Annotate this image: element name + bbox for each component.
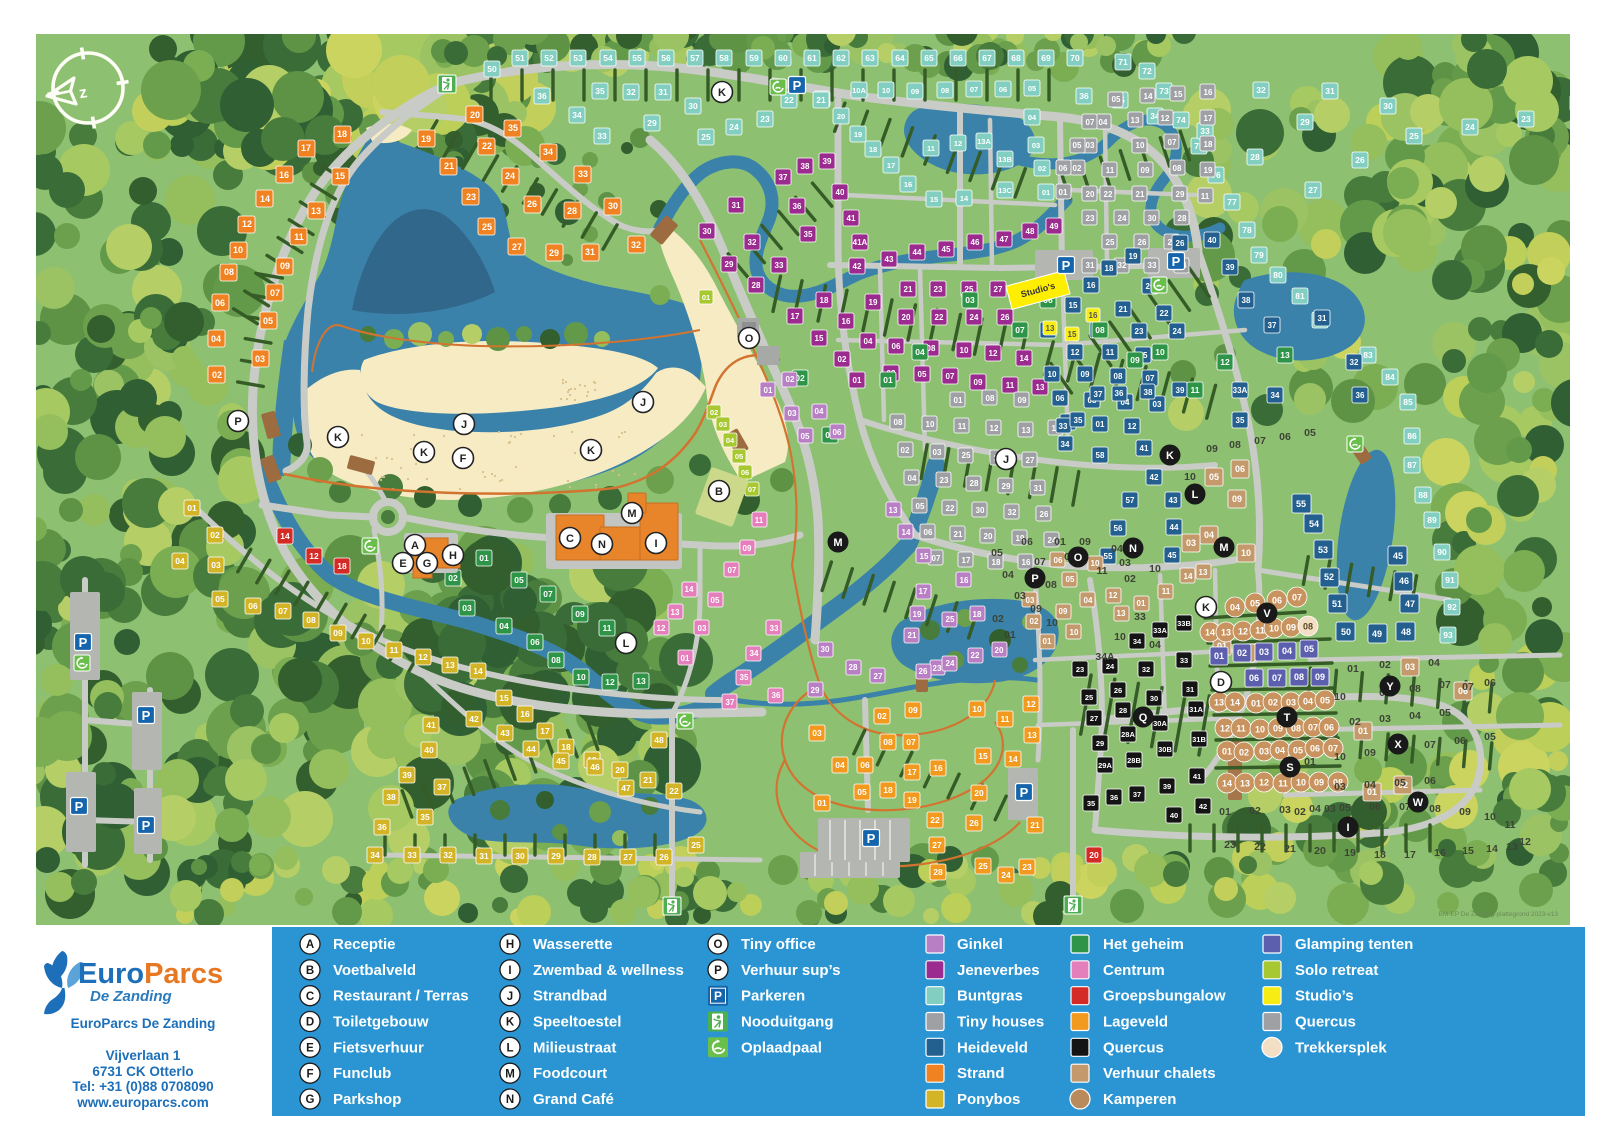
svg-text:10: 10: [1241, 548, 1251, 558]
svg-text:10: 10: [882, 86, 890, 95]
svg-text:06: 06: [741, 468, 749, 477]
svg-text:26: 26: [1040, 510, 1049, 519]
svg-text:19: 19: [1344, 847, 1356, 859]
svg-text:02: 02: [1124, 573, 1136, 585]
svg-text:12: 12: [954, 139, 962, 148]
svg-text:03: 03: [933, 448, 942, 457]
svg-text:38: 38: [801, 162, 810, 171]
svg-text:03: 03: [1259, 746, 1269, 756]
svg-text:16: 16: [1089, 311, 1098, 320]
svg-text:31: 31: [1325, 86, 1335, 96]
svg-text:08: 08: [894, 418, 903, 427]
svg-text:17: 17: [540, 726, 550, 736]
svg-text:26: 26: [969, 818, 979, 828]
svg-text:18: 18: [337, 129, 347, 139]
svg-text:13: 13: [445, 660, 455, 670]
svg-text:02: 02: [992, 613, 1004, 625]
svg-text:17: 17: [919, 587, 928, 596]
svg-text:29: 29: [1002, 482, 1011, 491]
svg-text:40: 40: [836, 188, 845, 197]
svg-text:10: 10: [1048, 370, 1057, 379]
svg-text:17: 17: [907, 767, 917, 777]
svg-text:29: 29: [647, 118, 657, 128]
svg-text:39: 39: [402, 770, 412, 780]
svg-text:M: M: [627, 508, 636, 520]
svg-text:N: N: [506, 1094, 514, 1106]
svg-text:20: 20: [1086, 190, 1095, 199]
svg-text:B: B: [715, 486, 723, 498]
svg-text:88: 88: [1418, 490, 1428, 500]
svg-text:27: 27: [512, 242, 522, 252]
svg-text:10: 10: [1114, 631, 1126, 643]
svg-text:13: 13: [1131, 116, 1140, 125]
svg-text:S: S: [1286, 762, 1293, 774]
svg-text:11: 11: [603, 623, 612, 633]
svg-text:41: 41: [847, 214, 856, 223]
svg-text:01: 01: [1043, 637, 1052, 646]
svg-text:45: 45: [942, 245, 951, 254]
svg-text:31: 31: [585, 247, 595, 257]
svg-text:Studio’s: Studio’s: [1295, 988, 1354, 1005]
svg-text:35: 35: [804, 230, 813, 239]
svg-text:42: 42: [1199, 802, 1207, 811]
svg-text:P: P: [1172, 254, 1181, 269]
svg-text:Heideveld: Heideveld: [957, 1039, 1028, 1056]
svg-text:16: 16: [279, 170, 289, 180]
svg-text:29: 29: [725, 260, 734, 269]
svg-text:11: 11: [1162, 587, 1171, 596]
svg-text:E: E: [306, 1043, 314, 1055]
svg-text:11: 11: [1278, 778, 1288, 788]
svg-text:10: 10: [1269, 623, 1279, 633]
svg-text:21: 21: [643, 775, 653, 785]
svg-text:61: 61: [807, 53, 817, 63]
svg-text:13: 13: [1046, 324, 1055, 333]
svg-text:33: 33: [407, 850, 417, 860]
svg-text:41A: 41A: [853, 238, 868, 247]
svg-text:18: 18: [1374, 849, 1386, 861]
svg-text:45: 45: [1168, 551, 1177, 560]
svg-text:15: 15: [1069, 301, 1078, 310]
svg-text:28: 28: [1119, 706, 1127, 715]
svg-text:09: 09: [1286, 622, 1296, 632]
svg-text:18: 18: [337, 561, 347, 571]
svg-text:P: P: [1031, 573, 1038, 585]
svg-text:33: 33: [1200, 126, 1210, 136]
svg-text:01: 01: [702, 293, 710, 302]
svg-text:02: 02: [1294, 806, 1306, 818]
svg-text:10: 10: [1155, 347, 1165, 357]
svg-text:02: 02: [1239, 747, 1249, 757]
svg-text:12: 12: [989, 349, 998, 358]
svg-text:Wasserette: Wasserette: [533, 936, 612, 953]
svg-text:67: 67: [982, 53, 992, 63]
svg-text:05: 05: [1394, 777, 1406, 789]
svg-text:11: 11: [1006, 381, 1015, 390]
svg-text:16: 16: [933, 763, 943, 773]
svg-text:03: 03: [1259, 647, 1269, 657]
svg-text:07: 07: [1086, 118, 1095, 127]
svg-text:27: 27: [623, 852, 633, 862]
svg-text:26: 26: [1138, 238, 1147, 247]
svg-text:81: 81: [1295, 291, 1305, 301]
svg-text:14: 14: [960, 194, 969, 203]
svg-text:12: 12: [1109, 591, 1118, 600]
svg-text:54: 54: [603, 53, 613, 63]
svg-text:P: P: [867, 831, 876, 846]
svg-text:39: 39: [1163, 782, 1171, 791]
svg-text:Oplaadpaal: Oplaadpaal: [741, 1039, 822, 1056]
svg-text:51: 51: [515, 53, 525, 63]
svg-text:32: 32: [626, 87, 636, 97]
svg-text:23: 23: [1135, 327, 1144, 336]
svg-text:09: 09: [1059, 607, 1068, 616]
svg-text:22: 22: [1104, 190, 1113, 199]
svg-text:05: 05: [735, 452, 743, 461]
svg-text:EuroParcs: EuroParcs: [78, 958, 223, 990]
svg-text:13: 13: [636, 676, 646, 686]
svg-text:43: 43: [885, 255, 894, 264]
svg-text:I: I: [1346, 822, 1349, 834]
svg-text:03: 03: [788, 409, 797, 418]
svg-text:11: 11: [958, 422, 967, 431]
svg-text:10: 10: [1334, 691, 1346, 703]
svg-text:Funclub: Funclub: [333, 1065, 391, 1082]
svg-text:23: 23: [1076, 665, 1084, 674]
svg-text:22: 22: [784, 95, 794, 105]
svg-text:40: 40: [1208, 236, 1217, 245]
svg-text:13: 13: [1221, 627, 1231, 637]
svg-text:30: 30: [608, 201, 618, 211]
svg-text:W: W: [1413, 797, 1424, 809]
svg-text:01: 01: [954, 396, 963, 405]
svg-text:15: 15: [1068, 330, 1077, 339]
svg-text:Nooduitgang: Nooduitgang: [741, 1014, 833, 1031]
svg-text:33A: 33A: [1233, 386, 1248, 395]
svg-text:20: 20: [470, 110, 480, 120]
svg-text:35: 35: [1236, 416, 1245, 425]
svg-text:Vijverlaan 1: Vijverlaan 1: [106, 1048, 181, 1063]
svg-text:09: 09: [280, 261, 290, 271]
svg-text:Kamperen: Kamperen: [1103, 1091, 1176, 1108]
svg-text:05: 05: [991, 547, 1003, 559]
svg-text:06: 06: [1484, 677, 1496, 689]
svg-text:35: 35: [420, 812, 430, 822]
svg-text:46: 46: [1399, 576, 1409, 586]
svg-text:23: 23: [466, 192, 476, 202]
svg-text:C: C: [566, 533, 574, 545]
svg-text:32: 32: [631, 240, 641, 250]
svg-text:01: 01: [1137, 599, 1146, 608]
svg-text:48: 48: [1026, 227, 1035, 236]
svg-text:05: 05: [1066, 575, 1075, 584]
svg-text:21: 21: [1284, 843, 1296, 855]
svg-text:Quercus: Quercus: [1103, 1039, 1164, 1056]
svg-text:23: 23: [1224, 839, 1236, 851]
svg-text:21: 21: [904, 285, 913, 294]
svg-text:16: 16: [1434, 847, 1446, 859]
svg-text:02: 02: [1379, 659, 1391, 671]
svg-text:57: 57: [1126, 496, 1135, 505]
svg-text:09: 09: [1079, 536, 1091, 548]
svg-text:09: 09: [908, 705, 918, 715]
svg-text:36: 36: [1110, 793, 1118, 802]
svg-text:31: 31: [1186, 685, 1194, 694]
svg-text:87: 87: [1407, 460, 1417, 470]
svg-text:37: 37: [726, 698, 735, 707]
svg-text:04: 04: [1204, 530, 1214, 540]
svg-text:A: A: [411, 540, 419, 552]
svg-text:32: 32: [1008, 508, 1017, 517]
svg-text:36: 36: [1356, 391, 1365, 400]
svg-text:34A: 34A: [1095, 651, 1115, 663]
svg-text:04: 04: [1364, 779, 1376, 791]
svg-text:Solo retreat: Solo retreat: [1295, 962, 1378, 979]
svg-text:55: 55: [1296, 499, 1306, 509]
svg-text:Restaurant / Terras: Restaurant / Terras: [333, 988, 469, 1005]
svg-text:58: 58: [1096, 451, 1105, 460]
svg-text:34: 34: [543, 147, 553, 157]
svg-text:35: 35: [740, 673, 749, 682]
svg-text:04: 04: [1428, 657, 1440, 669]
svg-text:06: 06: [1059, 164, 1068, 173]
svg-text:33B: 33B: [1177, 619, 1191, 628]
svg-text:06: 06: [1056, 394, 1065, 403]
svg-text:33: 33: [775, 261, 784, 270]
svg-text:31: 31: [658, 87, 668, 97]
svg-text:Parkshop: Parkshop: [333, 1091, 401, 1108]
svg-text:14: 14: [1184, 572, 1193, 581]
svg-text:17: 17: [1204, 114, 1213, 123]
svg-text:13: 13: [311, 206, 321, 216]
svg-text:15: 15: [335, 171, 345, 181]
svg-text:22: 22: [669, 786, 679, 796]
svg-text:17: 17: [962, 556, 971, 565]
svg-text:Buntgras: Buntgras: [957, 988, 1023, 1005]
svg-text:59: 59: [749, 53, 759, 63]
svg-text:01: 01: [817, 798, 827, 808]
svg-text:16: 16: [1087, 281, 1096, 290]
svg-text:01: 01: [764, 386, 773, 395]
svg-text:Tel: +31 (0)88 0708090: Tel: +31 (0)88 0708090: [72, 1079, 213, 1094]
svg-text:06: 06: [1021, 536, 1033, 548]
svg-text:09: 09: [1206, 443, 1218, 455]
svg-text:09: 09: [1018, 396, 1027, 405]
svg-text:14: 14: [1144, 92, 1153, 101]
svg-text:05: 05: [801, 432, 810, 441]
svg-text:30: 30: [703, 227, 712, 236]
svg-text:02: 02: [786, 375, 795, 384]
svg-text:08: 08: [883, 737, 893, 747]
svg-text:29: 29: [551, 851, 561, 861]
svg-text:16: 16: [1022, 558, 1031, 567]
svg-text:27: 27: [932, 840, 942, 850]
svg-text:52: 52: [544, 53, 554, 63]
svg-text:11: 11: [294, 232, 304, 242]
svg-text:15: 15: [930, 195, 938, 204]
svg-text:07: 07: [1424, 739, 1436, 751]
svg-text:18: 18: [820, 296, 829, 305]
svg-text:33: 33: [1180, 656, 1188, 665]
svg-text:19: 19: [421, 134, 431, 144]
svg-text:13A: 13A: [977, 137, 991, 146]
svg-text:27: 27: [1090, 714, 1098, 723]
svg-text:06: 06: [860, 760, 870, 770]
svg-text:68: 68: [1011, 53, 1021, 63]
svg-text:36: 36: [537, 91, 547, 101]
svg-text:08: 08: [1114, 372, 1123, 381]
svg-text:47: 47: [621, 783, 631, 793]
svg-text:06: 06: [1324, 722, 1334, 732]
svg-text:80: 80: [1273, 270, 1283, 280]
svg-text:60: 60: [778, 53, 788, 63]
svg-text:37: 37: [1268, 321, 1277, 330]
svg-text:21: 21: [1136, 190, 1145, 199]
svg-text:65: 65: [924, 53, 934, 63]
svg-text:Voetbalveld: Voetbalveld: [333, 962, 416, 979]
svg-text:10: 10: [1255, 724, 1265, 734]
svg-text:05: 05: [1439, 707, 1451, 719]
svg-text:24: 24: [1173, 327, 1182, 336]
svg-text:F: F: [460, 453, 467, 465]
svg-text:03: 03: [1086, 141, 1095, 150]
svg-text:Parkeren: Parkeren: [741, 988, 805, 1005]
svg-text:05: 05: [215, 594, 225, 604]
svg-text:01: 01: [1222, 746, 1232, 756]
svg-text:O: O: [714, 939, 723, 951]
svg-text:34: 34: [572, 110, 582, 120]
svg-text:O: O: [1074, 552, 1083, 564]
svg-text:15: 15: [1174, 90, 1183, 99]
svg-text:22: 22: [946, 504, 955, 513]
svg-text:05: 05: [918, 370, 927, 379]
svg-text:11: 11: [1106, 166, 1115, 175]
svg-text:04: 04: [864, 337, 873, 346]
svg-text:11: 11: [1001, 714, 1010, 724]
svg-text:19: 19: [913, 610, 922, 619]
svg-text:31: 31: [732, 201, 741, 210]
svg-text:11: 11: [1096, 565, 1107, 577]
svg-text:37: 37: [437, 782, 447, 792]
svg-text:G: G: [423, 558, 432, 570]
svg-text:42: 42: [469, 714, 479, 724]
svg-text:30: 30: [976, 506, 985, 515]
svg-text:25: 25: [1409, 131, 1419, 141]
svg-text:13: 13: [1214, 697, 1224, 707]
svg-text:11: 11: [1191, 385, 1200, 395]
svg-text:09: 09: [333, 628, 343, 638]
svg-text:09: 09: [1141, 166, 1150, 175]
svg-text:02: 02: [212, 370, 222, 380]
svg-text:64: 64: [895, 53, 905, 63]
svg-text:34: 34: [750, 649, 759, 658]
svg-text:06: 06: [215, 298, 225, 308]
svg-text:C: C: [306, 991, 314, 1003]
svg-text:06: 06: [1235, 464, 1245, 474]
svg-text:01: 01: [1004, 629, 1016, 641]
svg-text:06: 06: [530, 637, 540, 647]
svg-text:09: 09: [1232, 494, 1242, 504]
svg-text:22: 22: [482, 141, 492, 151]
svg-text:12: 12: [309, 551, 319, 561]
svg-text:23: 23: [934, 285, 943, 294]
svg-text:09: 09: [1459, 806, 1471, 818]
svg-text:09: 09: [1081, 370, 1090, 379]
svg-text:44: 44: [1170, 523, 1179, 532]
svg-text:01: 01: [1042, 188, 1050, 197]
svg-text:Strandbad: Strandbad: [533, 988, 607, 1005]
svg-text:28: 28: [849, 663, 858, 672]
svg-text:14: 14: [1222, 778, 1232, 788]
svg-text:24: 24: [1465, 122, 1475, 132]
svg-text:H: H: [449, 550, 457, 562]
svg-text:M: M: [1219, 542, 1228, 554]
svg-text:07: 07: [1439, 679, 1451, 691]
svg-text:14: 14: [1020, 354, 1029, 363]
svg-text:13: 13: [1506, 841, 1518, 853]
svg-text:24: 24: [505, 171, 515, 181]
svg-text:12: 12: [1238, 626, 1248, 636]
svg-text:02: 02: [710, 408, 718, 417]
svg-text:47: 47: [1405, 599, 1415, 609]
svg-text:19: 19: [869, 298, 878, 307]
svg-text:05: 05: [1073, 141, 1082, 150]
svg-text:05: 05: [1304, 644, 1314, 654]
svg-text:12: 12: [1071, 348, 1080, 357]
svg-text:09: 09: [1130, 355, 1140, 365]
svg-text:07: 07: [946, 372, 955, 381]
svg-text:25: 25: [978, 861, 988, 871]
svg-text:Foodcourt: Foodcourt: [533, 1065, 607, 1082]
svg-text:10: 10: [1149, 563, 1161, 575]
svg-text:02: 02: [838, 355, 847, 364]
svg-text:06: 06: [1272, 595, 1282, 605]
svg-text:16: 16: [520, 709, 530, 719]
svg-text:07: 07: [970, 85, 978, 94]
svg-text:30: 30: [1150, 694, 1158, 703]
svg-text:41: 41: [426, 720, 436, 730]
svg-text:92: 92: [1447, 602, 1457, 612]
svg-text:Speeltoestel: Speeltoestel: [533, 1014, 621, 1031]
svg-text:03: 03: [1153, 400, 1162, 409]
svg-text:79: 79: [1254, 250, 1264, 260]
svg-text:10: 10: [972, 704, 982, 714]
svg-text:01: 01: [681, 654, 690, 663]
svg-text:10: 10: [1184, 471, 1196, 483]
svg-text:14: 14: [1230, 697, 1240, 707]
svg-text:03: 03: [1119, 557, 1131, 569]
svg-text:03: 03: [1324, 803, 1336, 815]
svg-text:12: 12: [657, 624, 666, 633]
svg-text:28: 28: [970, 479, 979, 488]
svg-text:07: 07: [278, 606, 288, 616]
svg-text:13: 13: [889, 506, 898, 515]
svg-text:24: 24: [1118, 214, 1127, 223]
svg-text:05: 05: [711, 596, 720, 605]
svg-text:27: 27: [1308, 185, 1318, 195]
svg-text:30: 30: [1383, 101, 1393, 111]
svg-text:B: B: [306, 965, 314, 977]
svg-text:Glamping tenten: Glamping tenten: [1295, 936, 1413, 953]
svg-text:74: 74: [1176, 115, 1186, 125]
svg-text:10: 10: [960, 346, 969, 355]
svg-text:36: 36: [793, 202, 802, 211]
svg-text:06: 06: [1369, 801, 1381, 813]
svg-text:52: 52: [1324, 572, 1334, 582]
svg-text:42: 42: [1150, 473, 1159, 482]
svg-text:37: 37: [1094, 390, 1103, 399]
svg-text:10: 10: [361, 636, 371, 646]
